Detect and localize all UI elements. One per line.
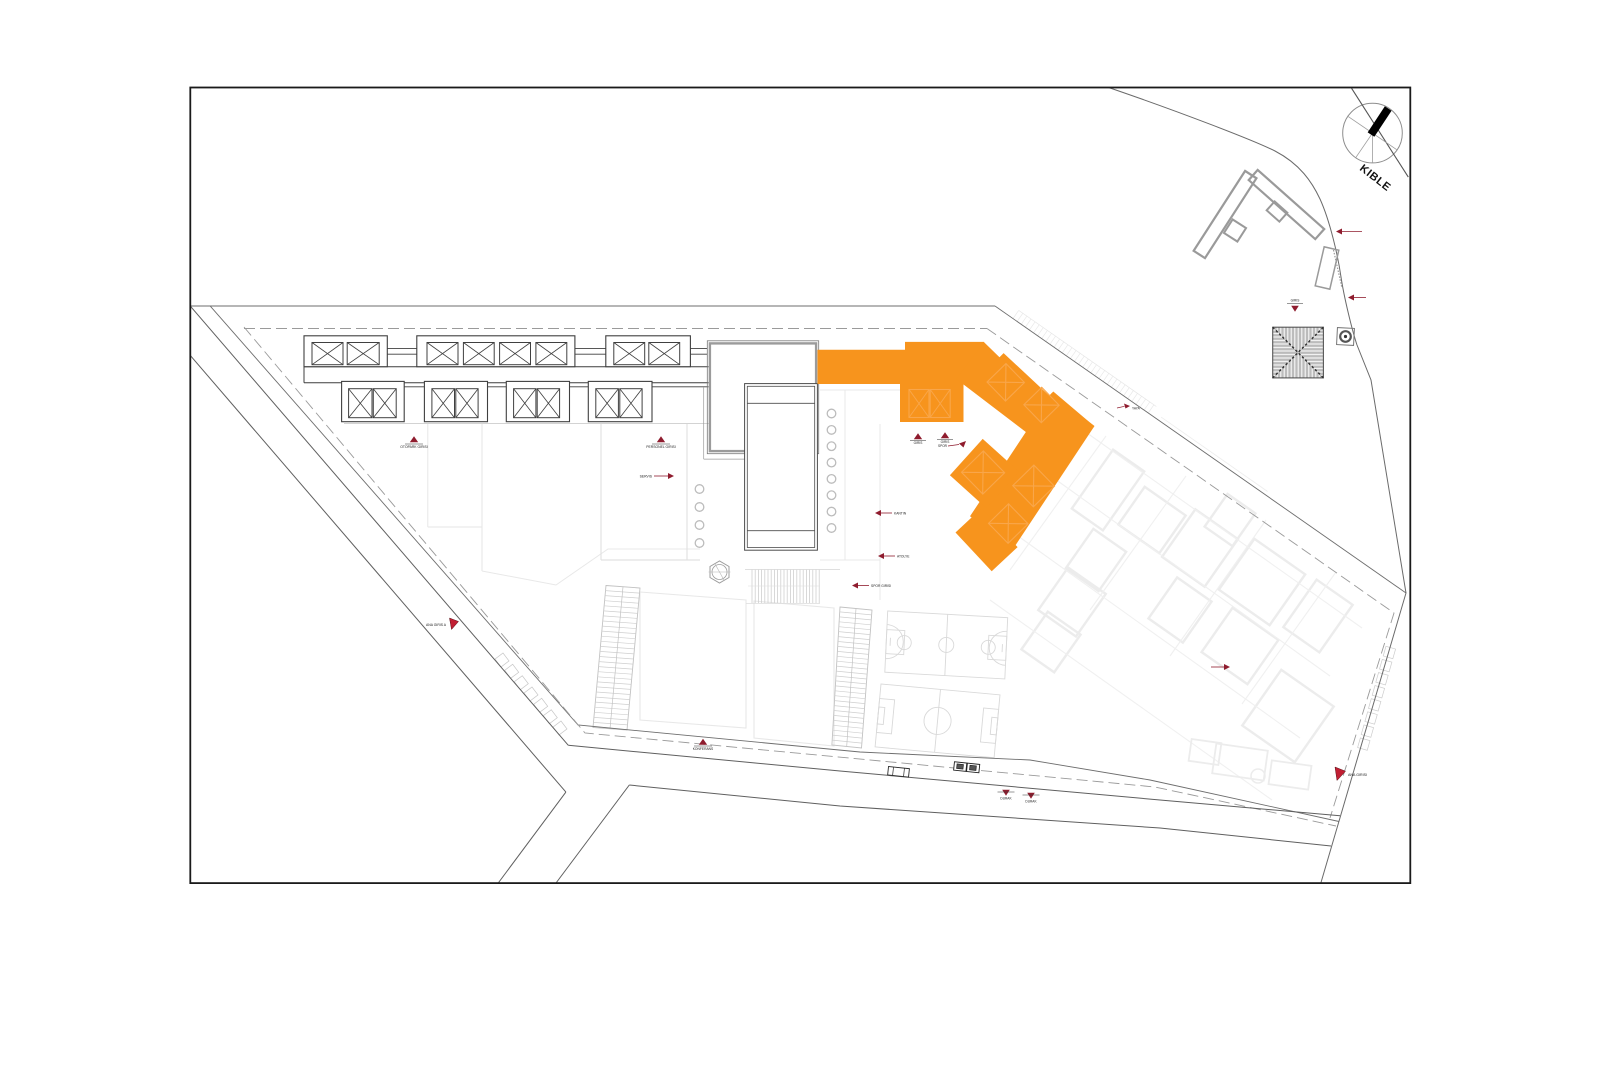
svg-text:ANA GIRISI: ANA GIRISI bbox=[1348, 773, 1367, 777]
svg-text:PERSONEL GIRISI: PERSONEL GIRISI bbox=[646, 445, 676, 449]
svg-text:OTOPARK GIRISI: OTOPARK GIRISI bbox=[400, 445, 427, 449]
svg-text:ANA GIRIS A: ANA GIRIS A bbox=[426, 623, 447, 627]
svg-text:SERVIS: SERVIS bbox=[640, 475, 653, 479]
svg-text:DURAK: DURAK bbox=[1025, 800, 1037, 804]
svg-text:KANTIN: KANTIN bbox=[894, 511, 907, 515]
svg-text:DURAK: DURAK bbox=[1000, 797, 1012, 801]
svg-text:ATOLYE: ATOLYE bbox=[897, 554, 910, 558]
svg-text:SPOR GIRISI: SPOR GIRISI bbox=[871, 584, 891, 588]
svg-text:KONFERANS: KONFERANS bbox=[693, 747, 714, 751]
svg-text:GIRIS: GIRIS bbox=[914, 441, 923, 445]
svg-text:GIRIS: GIRIS bbox=[1291, 299, 1300, 303]
svg-text:YAYA: YAYA bbox=[1132, 407, 1141, 411]
svg-text:SPOR: SPOR bbox=[938, 444, 948, 448]
